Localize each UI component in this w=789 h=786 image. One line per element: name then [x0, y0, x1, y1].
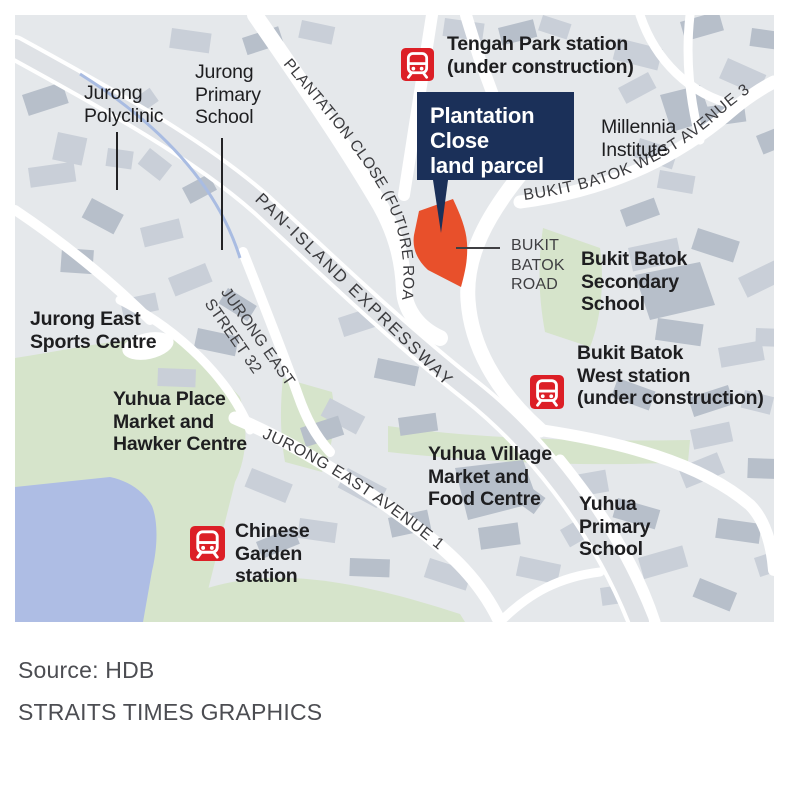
label-bukit-batok-road: BUKIT BATOK ROAD — [511, 236, 565, 295]
label-bukit-batok-west-station: Bukit Batok West station (under construc… — [577, 342, 764, 410]
pointer-line-jurong-primary-school — [221, 138, 223, 250]
credit-text: STRAITS TIMES GRAPHICS — [18, 699, 322, 726]
label-chinese-garden-station: Chinese Garden station — [235, 520, 309, 588]
source-text: Source: HDB — [18, 657, 154, 684]
label-jurong-east-sports-centre: Jurong East Sports Centre — [30, 308, 156, 353]
label-jurong-primary-school: Jurong Primary School — [195, 61, 261, 129]
label-millennia-institute: Millennia Institute — [601, 116, 676, 161]
label-bukit-batok-secondary-school: Bukit Batok Secondary School — [581, 248, 687, 316]
label-yuhua-place-market: Yuhua Place Market and Hawker Centre — [113, 388, 247, 456]
label-yuhua-primary-school: Yuhua Primary School — [579, 493, 650, 561]
mrt-icon-bukit-batok-west — [530, 375, 564, 409]
label-jurong-polyclinic: Jurong Polyclinic — [84, 82, 163, 127]
land-parcel-callout: Plantation Close land parcel — [417, 92, 574, 180]
water-area — [15, 477, 157, 622]
label-tengah-park-station: Tengah Park station (under construction) — [447, 33, 634, 78]
label-yuhua-village-market: Yuhua Village Market and Food Centre — [428, 443, 552, 511]
pointer-line-jurong-polyclinic — [116, 132, 118, 190]
graphic-root: PLANTATION CLOSE (FUTURE ROAD) PAN-ISLAN… — [0, 0, 789, 786]
mrt-icon-tengah-park — [401, 48, 434, 81]
mrt-icon-chinese-garden — [190, 526, 225, 561]
